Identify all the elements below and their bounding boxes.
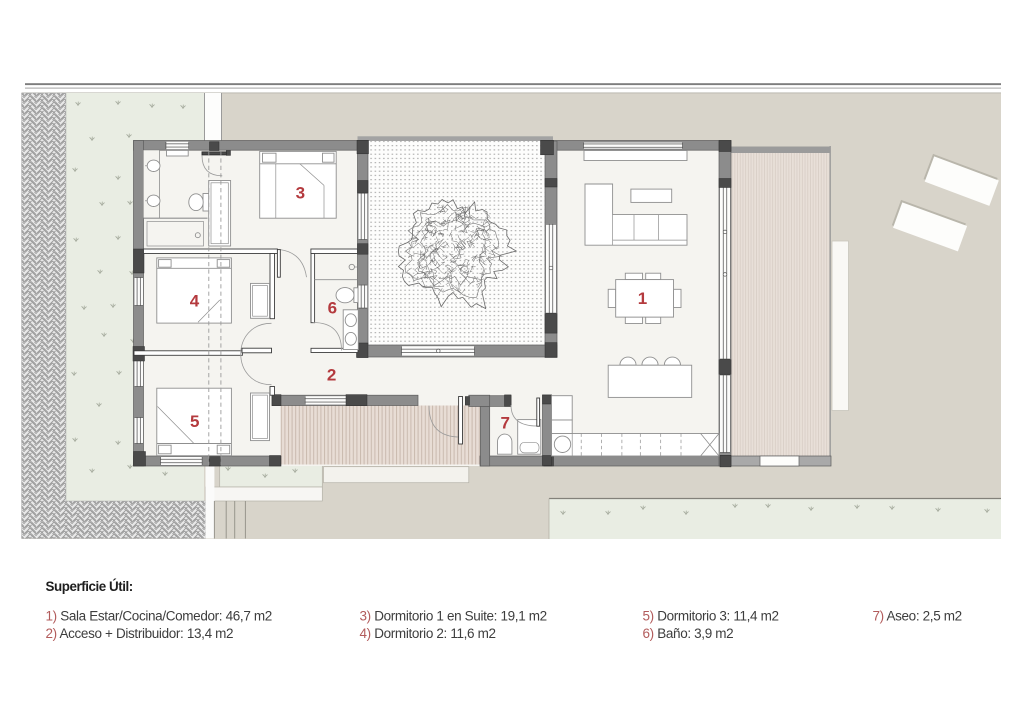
svg-text:2: 2 (327, 366, 336, 385)
svg-text:1) Sala Estar/Cocina/Comedor:: 1) Sala Estar/Cocina/Comedor: 46,7 m2 (46, 608, 272, 623)
svg-text:4: 4 (190, 292, 200, 311)
svg-text:1: 1 (638, 289, 647, 308)
svg-text:4) Dormitorio 2: 11,6 m2: 4) Dormitorio 2: 11,6 m2 (360, 626, 496, 641)
svg-text:5: 5 (190, 412, 199, 431)
svg-text:6: 6 (328, 298, 337, 317)
svg-text:6) Baño: 3,9 m2: 6) Baño: 3,9 m2 (643, 626, 734, 641)
svg-text:7: 7 (500, 413, 509, 432)
svg-text:5) Dormitorio 3: 11,4 m2: 5) Dormitorio 3: 11,4 m2 (643, 608, 779, 623)
svg-text:7) Aseo: 2,5 m2: 7) Aseo: 2,5 m2 (873, 608, 962, 623)
svg-text:3) Dormitorio 1 en Suite: 19,1: 3) Dormitorio 1 en Suite: 19,1 m2 (360, 608, 547, 623)
svg-text:2) Acceso + Distribuidor: 13,4: 2) Acceso + Distribuidor: 13,4 m2 (46, 626, 234, 641)
svg-text:3: 3 (296, 183, 305, 202)
svg-text:Superficie Útil:: Superficie Útil: (46, 579, 133, 594)
